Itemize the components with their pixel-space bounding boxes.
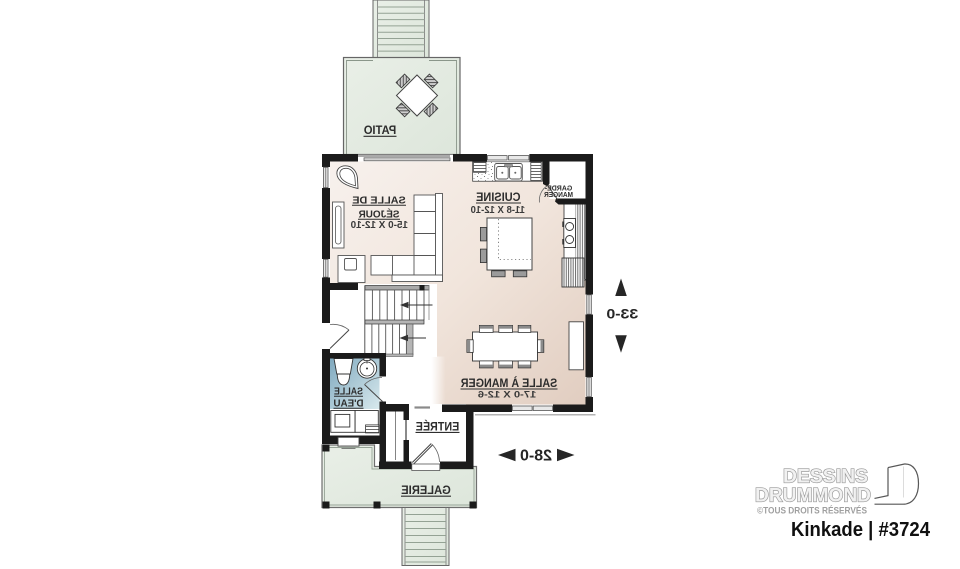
svg-text:MANGER: MANGER xyxy=(544,192,573,199)
svg-text:28-0: 28-0 xyxy=(520,447,552,464)
svg-text:ENTRÉE: ENTRÉE xyxy=(415,420,459,433)
svg-text:17-0 X 12-6: 17-0 X 12-6 xyxy=(478,389,537,399)
svg-text:DESSINS: DESSINS xyxy=(783,467,868,488)
svg-text:11-8 X 12-10: 11-8 X 12-10 xyxy=(470,205,525,216)
svg-text:PATIO: PATIO xyxy=(364,125,397,137)
svg-text:©TOUS DROITS RÉSERVÉS: ©TOUS DROITS RÉSERVÉS xyxy=(757,506,867,517)
svg-text:SALLE À MANGER: SALLE À MANGER xyxy=(460,377,557,390)
svg-text:GALERIE: GALERIE xyxy=(401,485,451,497)
svg-text:33-0: 33-0 xyxy=(606,307,638,322)
svg-text:D'EAU: D'EAU xyxy=(334,398,364,409)
svg-text:DRUMMOND: DRUMMOND xyxy=(755,486,871,507)
svg-text:15-0 X 12-10: 15-0 X 12-10 xyxy=(350,220,408,231)
svg-text:Kinkade | #3724: Kinkade | #3724 xyxy=(791,519,931,541)
svg-text:SALLE DE: SALLE DE xyxy=(352,194,406,206)
svg-text:SALLE: SALLE xyxy=(334,386,363,397)
svg-text:SÉJOUR: SÉJOUR xyxy=(358,207,399,220)
svg-text:CUISINE: CUISINE xyxy=(476,192,521,204)
